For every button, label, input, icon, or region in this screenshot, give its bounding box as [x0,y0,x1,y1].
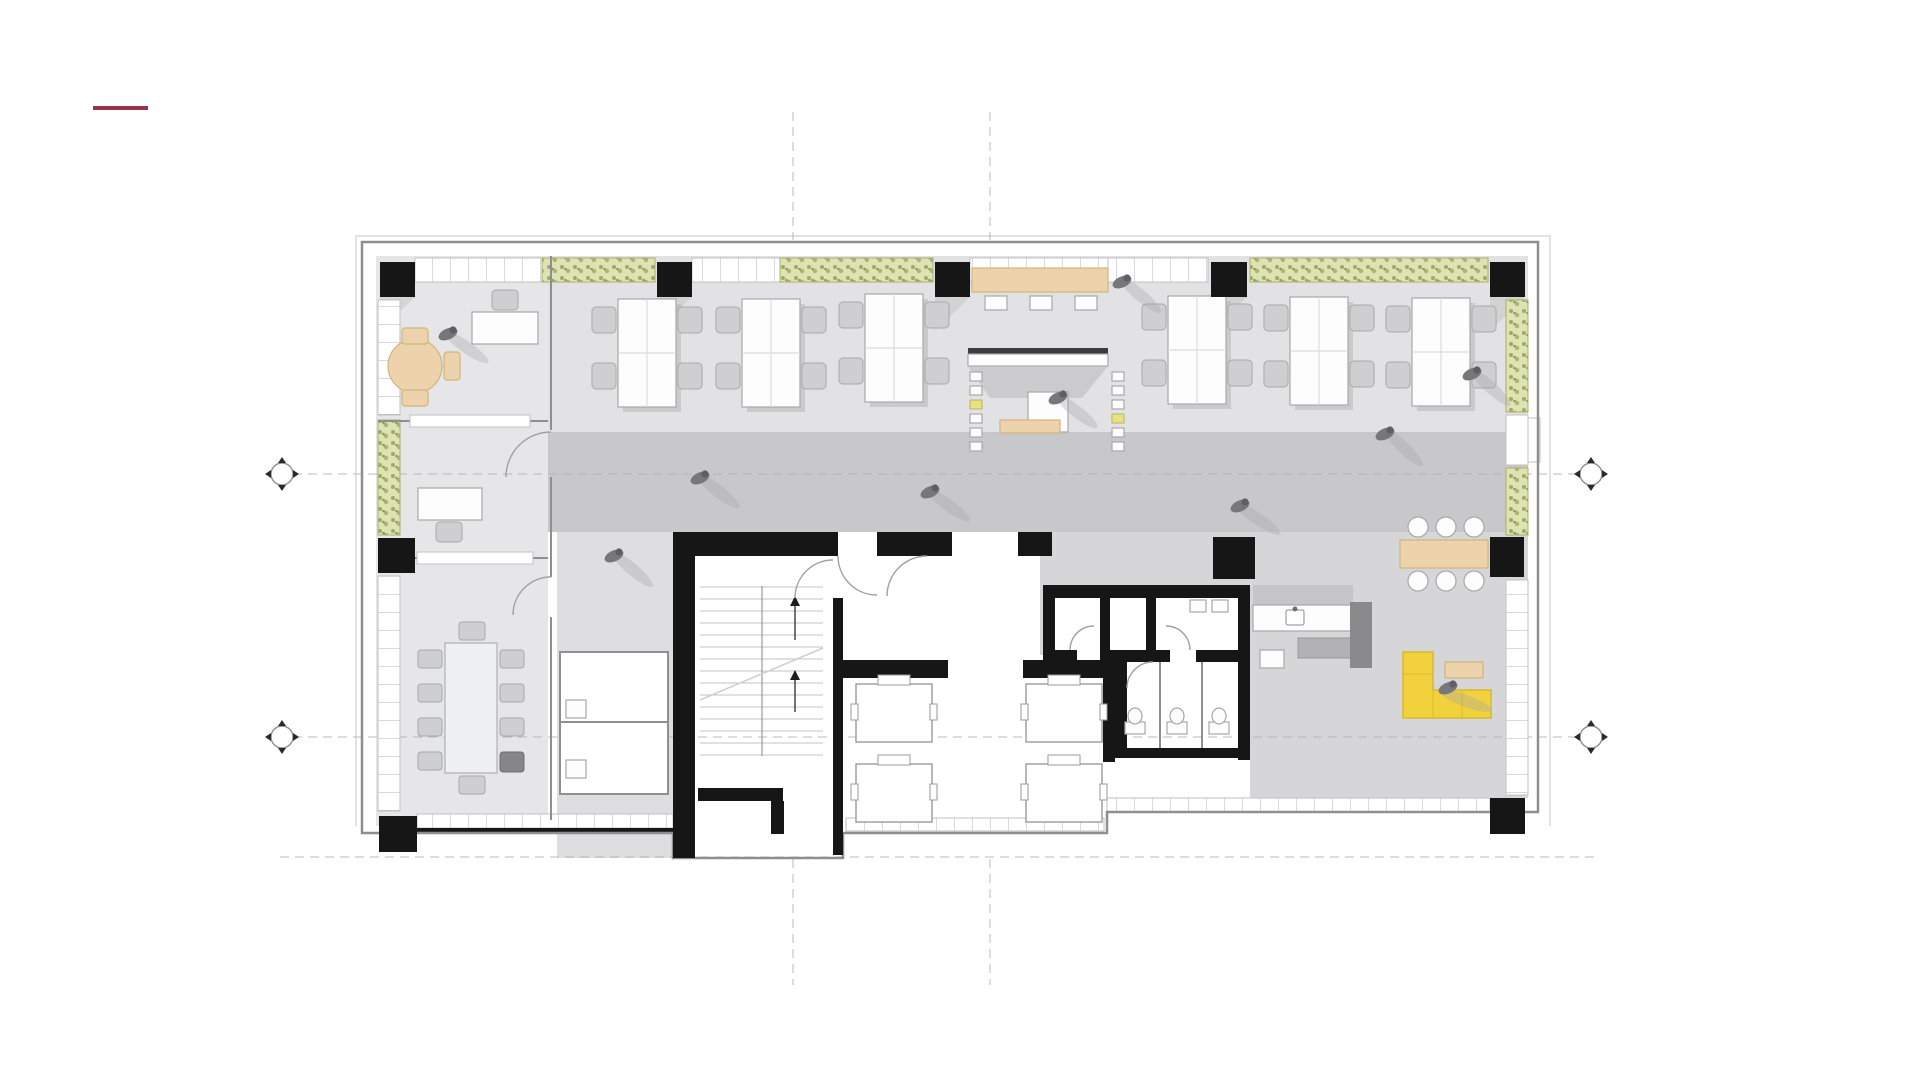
wc-wall [1238,585,1250,760]
task-chair [925,302,949,328]
task-chair [1264,361,1288,387]
coffee-bar [972,268,1108,310]
task-chair [678,307,702,333]
dining-chair [1436,517,1456,537]
occupied-chair [500,752,524,772]
wc-wall [1115,662,1127,754]
kitchen-backsplash [1253,585,1353,605]
column [379,816,417,852]
wc-wall [1115,748,1250,758]
elevator-car [851,755,937,822]
task-chair [1386,362,1410,388]
wc-wall [1100,598,1110,652]
red-accent-mark [93,106,148,110]
task-chair [839,358,863,384]
floor-areas [376,256,1528,858]
stool [985,296,1007,310]
task-chair [925,358,949,384]
grid-bubble [265,720,299,754]
task-chair [592,363,616,389]
column [657,262,692,297]
dining-chair [1436,571,1456,591]
grid-bubble [265,457,299,491]
task-chair [1228,360,1252,386]
task-chair [1350,361,1374,387]
tall-cabinet [1350,602,1372,668]
planter-strip [1250,258,1488,282]
elevator-car [1021,755,1107,822]
planter-strip [1506,468,1528,535]
planter-strip [1506,300,1528,412]
core-wall [833,598,843,855]
desk [418,488,482,520]
column [935,262,970,297]
dining-chair [1408,517,1428,537]
core-wall [771,801,784,834]
core-wall [698,788,783,801]
bar-counter [972,268,1108,292]
column [1018,532,1052,556]
office-chair [436,522,462,542]
side-chair [444,352,460,380]
kitchen-island [1298,638,1352,658]
core-wall [673,556,695,858]
dining-chair [1464,517,1484,537]
task-chair [1386,306,1410,332]
side-chair [402,328,428,344]
slide-canvas [0,0,1920,1080]
interior-glazing [417,552,533,564]
stool [1075,296,1097,310]
lounge-dining [1400,517,1488,591]
round-meeting-table [388,339,442,393]
fridge [1260,650,1284,668]
wc-wall [1146,598,1156,652]
task-chair [592,307,616,333]
elevator-door [1048,755,1080,765]
task-chair [1472,306,1496,332]
core-wall [673,532,838,556]
wc-wall [1043,585,1250,598]
reception-counter-top [968,348,1108,354]
floor-plan-drawing [0,0,1920,1080]
faucet [1293,607,1298,612]
reception-counter [968,354,1108,366]
task-chair [802,363,826,389]
elevator-door [878,755,910,765]
coffee-table [1445,662,1483,678]
task-chair [1142,360,1166,386]
conference-table [445,643,497,773]
stool [1030,296,1052,310]
stair-core [700,586,823,756]
task-chair [802,307,826,333]
column [378,538,415,573]
task-chair [1264,305,1288,331]
window-strip [1506,415,1528,465]
side-chair [402,390,428,406]
planter-strip [542,258,655,282]
office-chair [492,290,518,310]
elevator-door [878,675,910,685]
wc-wall [1196,650,1250,662]
sink [1212,600,1228,612]
dining-table [1400,540,1488,568]
task-chair [1228,304,1252,330]
grid-bubble [1574,457,1608,491]
elevator-car [1021,675,1107,742]
task-chair [678,363,702,389]
dining-chair [1408,571,1428,591]
task-chair [716,363,740,389]
column [1490,798,1525,834]
task-chair [716,307,740,333]
desk [472,312,538,344]
wc-wall [1043,585,1055,655]
elevator-car [851,675,937,742]
planter-strip [780,258,933,282]
column [1490,262,1525,297]
elevator-door [1048,675,1080,685]
planter-strip [378,420,400,535]
column [1211,262,1247,297]
bench [1000,420,1060,433]
task-chair [839,302,863,328]
sink [1190,600,1206,612]
kitchen-sink [1286,610,1304,625]
column [380,262,415,297]
task-chair [1350,305,1374,331]
interior-glazing [410,415,530,427]
wc-wall [1043,650,1077,662]
column [1490,537,1524,577]
core-wall [877,532,952,556]
wc-wall [1100,650,1170,662]
grid-bubble [1574,720,1608,754]
storage-rooms [560,652,668,794]
dining-chair [1464,571,1484,591]
column [1213,537,1255,579]
